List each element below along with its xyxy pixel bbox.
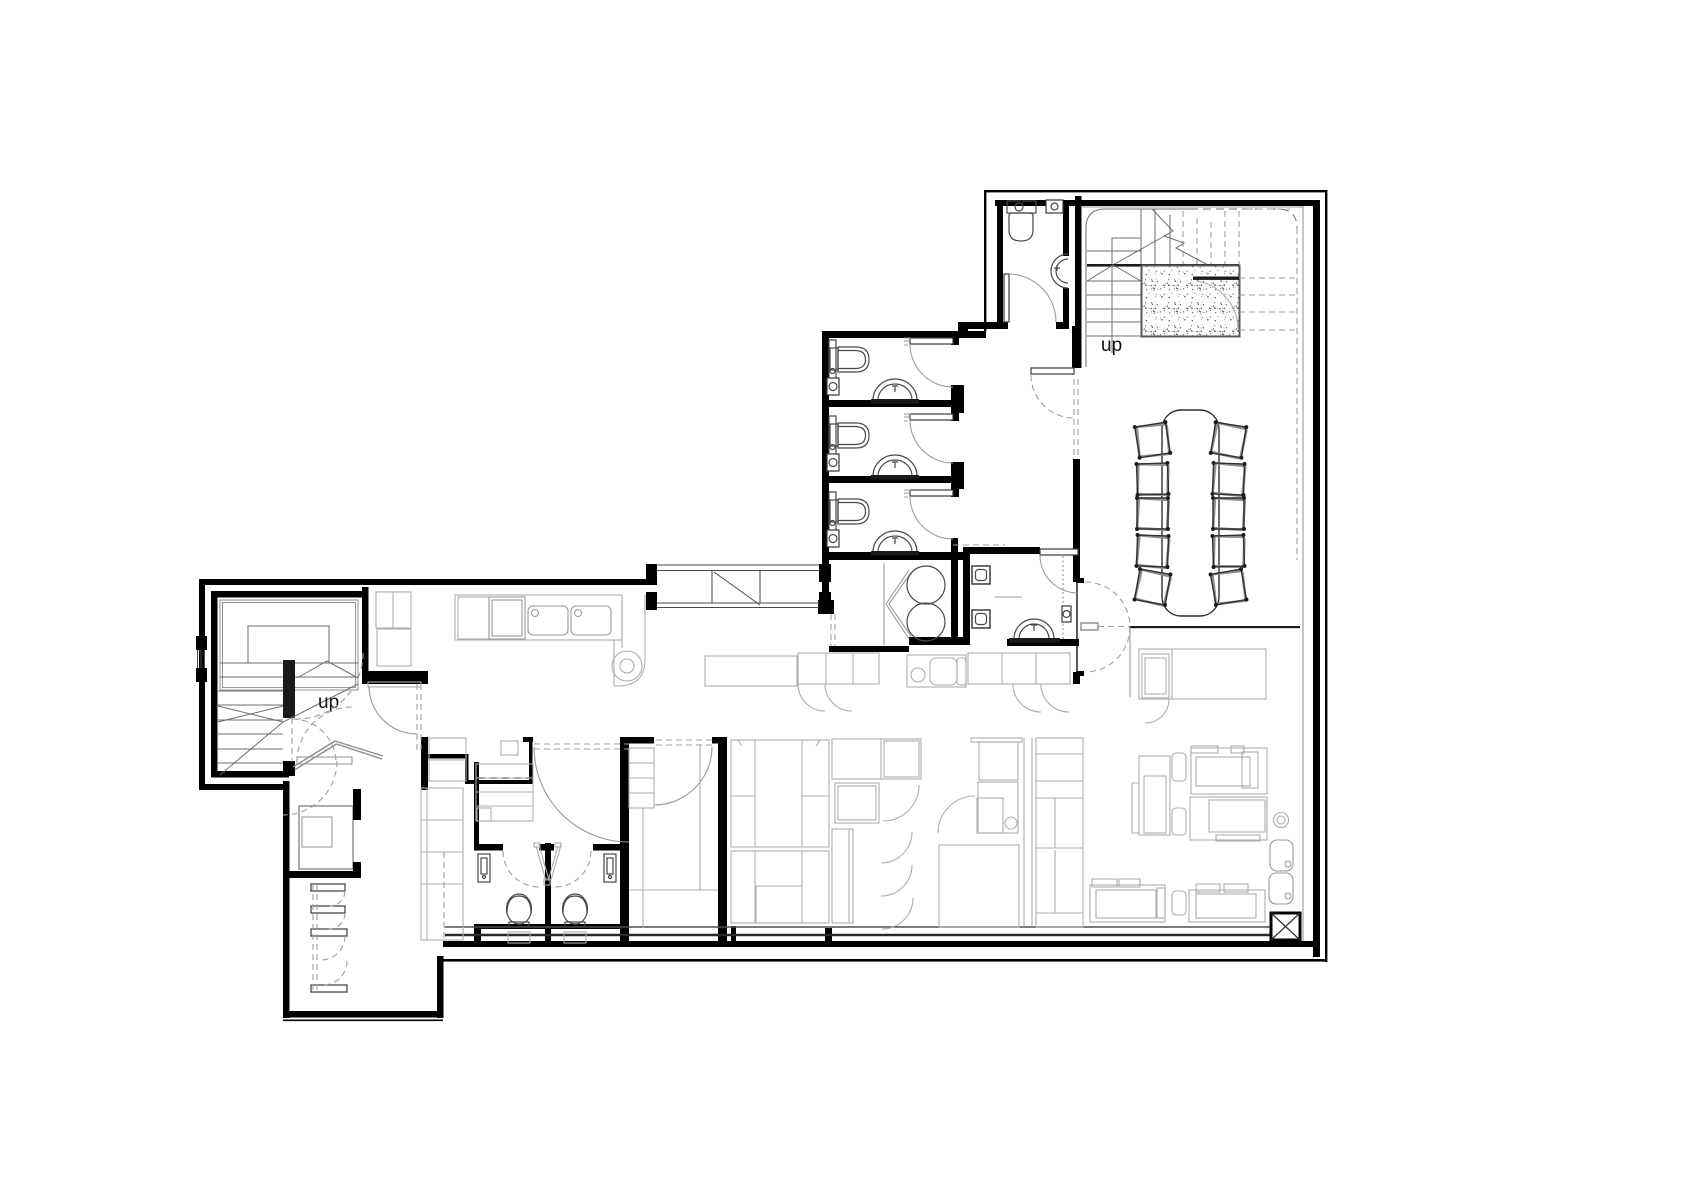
svg-text:up: up <box>1101 335 1122 356</box>
svg-text:up: up <box>318 692 339 713</box>
